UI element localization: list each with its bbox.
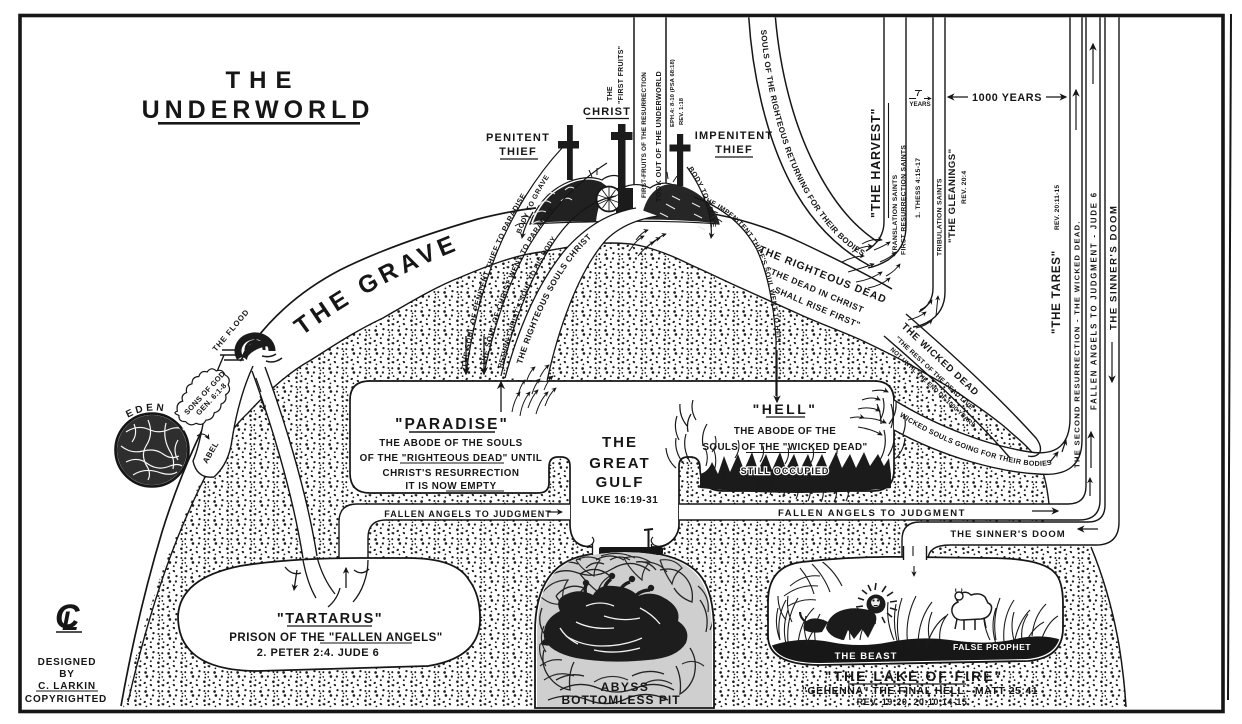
svg-text:THE ABODE OF THE SOULS: THE ABODE OF THE SOULS (379, 438, 522, 449)
svg-text:1000 YEARS: 1000 YEARS (972, 92, 1042, 104)
svg-text:BOTTOMLESS PIT: BOTTOMLESS PIT (561, 693, 680, 707)
svg-text:FALLEN ANGELS TO JUDGMENT: FALLEN ANGELS TO JUDGMENT (778, 508, 966, 519)
svg-text:THE BEAST: THE BEAST (835, 651, 898, 662)
svg-text:SOULS OF THE "WICKED DEAD": SOULS OF THE "WICKED DEAD" (702, 442, 867, 453)
svg-text:TOOK OUT OF THE UNDERWORLD: TOOK OUT OF THE UNDERWORLD (654, 71, 663, 202)
svg-text:DESIGNED: DESIGNED (38, 657, 97, 668)
svg-text:THE: THE (607, 86, 614, 101)
svg-text:OF THE "RIGHTEOUS DEAD" UNTIL: OF THE "RIGHTEOUS DEAD" UNTIL (360, 453, 543, 464)
svg-text:"THE GLEANINGS": "THE GLEANINGS" (947, 148, 958, 243)
svg-text:FIRST-FRUITS OF THE RESURRECTI: FIRST-FRUITS OF THE RESURRECTION (641, 72, 648, 198)
svg-text:REV. 20:11-15: REV. 20:11-15 (1054, 185, 1061, 230)
svg-text:"FIRST FRUITS": "FIRST FRUITS" (618, 46, 625, 104)
svg-text:"PARADISE": "PARADISE" (395, 416, 509, 433)
svg-text:GULF: GULF (596, 474, 645, 491)
svg-text:PENITENT: PENITENT (486, 132, 550, 144)
svg-text:THE: THE (602, 434, 638, 451)
svg-text:CHRIST'S RESURRECTION: CHRIST'S RESURRECTION (383, 468, 520, 479)
svg-text:THE SECOND RESURRECTION - THE: THE SECOND RESURRECTION - THE WICKED DEA… (1073, 220, 1082, 468)
svg-text:FALLEN ANGELS TO JUDGMENT - JU: FALLEN ANGELS TO JUDGMENT - JUDE 6 (1090, 191, 1099, 410)
svg-text:"THE TARES": "THE TARES" (1051, 250, 1063, 334)
svg-text:CHRIST: CHRIST (583, 106, 631, 118)
svg-text:C. LARKIN: C. LARKIN (38, 681, 96, 692)
svg-text:"HELL": "HELL" (753, 401, 818, 417)
svg-text:PRISON OF THE "FALLEN ANGELS": PRISON OF THE "FALLEN ANGELS" (229, 632, 442, 644)
svg-text:TRIBULATION SAINTS: TRIBULATION SAINTS (937, 178, 944, 256)
svg-text:1. THESS 4:15-17: 1. THESS 4:15-17 (915, 158, 922, 218)
svg-text:IT IS NOW EMPTY: IT IS NOW EMPTY (405, 481, 496, 492)
svg-text:TRANSLATION SAINTS: TRANSLATION SAINTS (892, 174, 899, 255)
svg-text:THE ABODE OF THE: THE ABODE OF THE (734, 426, 836, 437)
svg-text:THE: THE (226, 67, 301, 94)
svg-text:LUKE 16:19-31: LUKE 16:19-31 (582, 495, 659, 506)
svg-text:STILL OCCUPIED: STILL OCCUPIED (741, 466, 830, 476)
svg-text:"GEHENNA" THE FINAL HELL - MAT: "GEHENNA" THE FINAL HELL - MATT 25:41 (802, 685, 1038, 697)
svg-text:THE SINNER'S DOOM: THE SINNER'S DOOM (950, 529, 1065, 540)
svg-text:THIEF: THIEF (715, 144, 753, 156)
svg-text:REV. 1:18: REV. 1:18 (679, 97, 685, 125)
svg-text:ABYSS: ABYSS (601, 680, 650, 694)
svg-text:"TARTARUS": "TARTARUS" (277, 611, 383, 627)
svg-text:2. PETER 2:4. JUDE 6: 2. PETER 2:4. JUDE 6 (257, 647, 380, 659)
svg-text:THE SINNER'S DOOM: THE SINNER'S DOOM (1109, 204, 1120, 330)
svg-text:REV. 19:20, 20:10,14-15: REV. 19:20, 20:10,14-15 (857, 697, 968, 707)
svg-text:"THE LAKE OF FIRE": "THE LAKE OF FIRE" (825, 668, 1003, 684)
svg-text:"THE HARVEST": "THE HARVEST" (869, 108, 883, 218)
svg-text:FALLEN ANGELS TO JUDGMENT: FALLEN ANGELS TO JUDGMENT (384, 509, 552, 519)
svg-text:FIRST RESURRECTION SAINTS: FIRST RESURRECTION SAINTS (901, 145, 908, 255)
svg-text:BY: BY (59, 669, 75, 680)
svg-text:COPYRIGHTED: COPYRIGHTED (25, 694, 107, 705)
svg-text:IMPENITENT: IMPENITENT (695, 130, 774, 142)
svg-text:EPH.4: 8-10 (PSA 68:18): EPH.4: 8-10 (PSA 68:18) (670, 59, 676, 127)
svg-text:THIEF: THIEF (499, 146, 537, 158)
svg-text:YEARS: YEARS (909, 101, 930, 108)
svg-text:REV. 20:4: REV. 20:4 (961, 171, 968, 204)
svg-text:GREAT: GREAT (589, 455, 650, 472)
svg-text:UNDERWORLD: UNDERWORLD (142, 96, 375, 124)
svg-text:FALSE PROPHET: FALSE PROPHET (953, 642, 1031, 652)
